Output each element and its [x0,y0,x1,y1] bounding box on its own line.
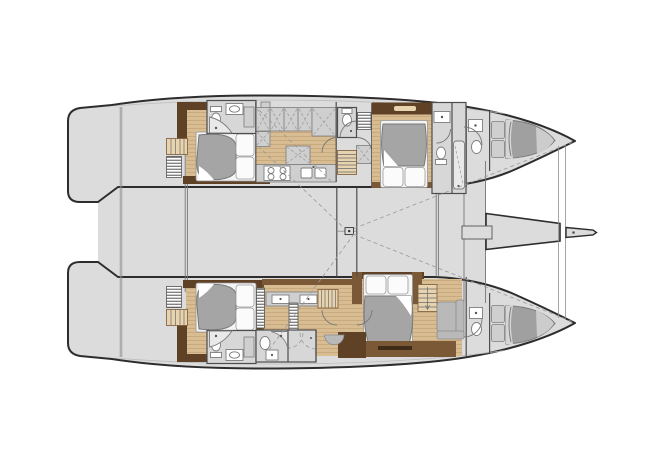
shelf-unit [244,107,254,127]
pillow [236,285,254,307]
toilet [260,337,270,350]
pillow [236,134,254,156]
hatch [394,106,416,111]
toilet-tank [436,160,447,165]
vent-grille [289,303,298,330]
sink-bowl [315,168,326,178]
galley [256,102,336,182]
shower-drain [215,335,217,337]
pillow [236,157,254,179]
galley-island [286,146,310,165]
toilet-tank [211,353,222,358]
toilet [472,323,482,336]
toilet-tank [211,107,222,112]
wardrobe [177,320,187,362]
owner-bathroom [256,330,316,362]
sofa-seat [437,302,457,332]
port-aft-bathroom [207,101,256,134]
locker [492,141,505,158]
pillow [236,308,254,330]
vent-grille [257,288,265,328]
pillow [383,168,403,187]
port-forward-bathroom [432,103,466,194]
shower-drain [350,130,352,132]
washbasin [441,116,443,118]
bowsprit-fitting [572,231,575,234]
locker [492,122,505,139]
entry-steps [167,139,188,155]
starboard-aft-bathroom [207,331,256,364]
catamaran-floorplan [0,0,656,464]
shower-drain [215,127,217,129]
vent-grille [167,157,182,178]
wardrobe [177,102,187,144]
faucet [312,166,314,168]
owner-suite [256,272,464,362]
vent-grille [358,113,372,130]
catamaran-floorplan-svg [0,0,656,464]
salon-cockpit-deck [98,188,437,277]
locker [492,325,505,342]
pillow [388,276,408,294]
nightstand [352,272,362,304]
vent-grille [167,287,182,308]
vanity [226,350,243,361]
stairs-to-port-hull [338,151,357,175]
toilet [437,147,446,159]
dresser-handle [378,346,412,350]
stairs-to-starboard-hull [318,290,338,309]
sofa-arm [437,331,464,339]
port-forward-cabin [372,103,466,194]
cabinet [262,279,356,285]
locker [492,306,505,323]
anchor-windlass-locker [462,226,492,239]
mast-position [348,230,350,232]
toilet-tank [342,109,352,114]
shower-head [280,335,282,337]
toilet [472,141,482,154]
pillow [366,276,386,294]
sink-bowl [301,168,312,178]
shelf-unit [244,337,254,357]
stove [264,166,290,181]
pillow [405,168,425,187]
entry-steps [167,310,188,326]
vanity [226,104,243,115]
